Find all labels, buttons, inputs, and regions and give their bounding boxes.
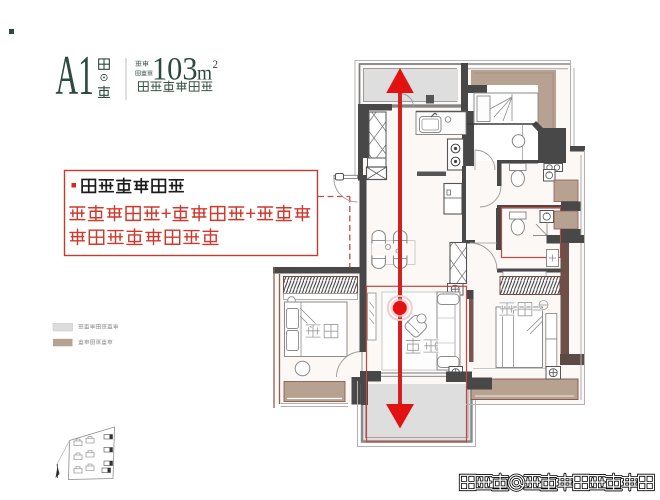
svg-text:2: 2 — [213, 59, 219, 71]
svg-text:A1: A1 — [56, 45, 94, 107]
svg-text:m: m — [197, 62, 212, 85]
